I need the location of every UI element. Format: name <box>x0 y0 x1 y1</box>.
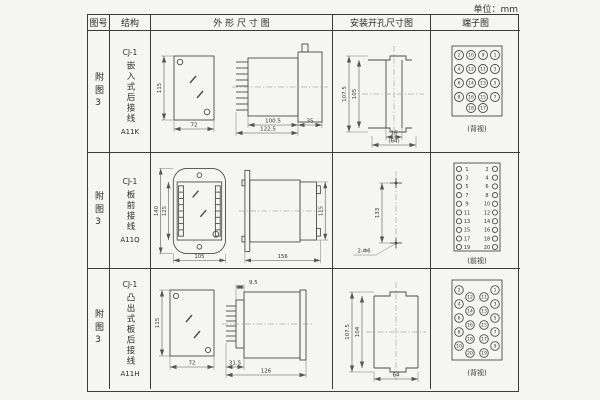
terminal-number: 17 <box>480 105 486 111</box>
fig-cell-row1: 附图3 <box>88 31 110 153</box>
fig-number: 附图3 <box>92 72 105 112</box>
terminal-number: 5 <box>493 316 496 322</box>
terminal-number: 11 <box>463 210 469 216</box>
terminal-number: 20 <box>467 351 473 357</box>
terminal-number: 1 <box>493 52 496 58</box>
outline-cell-row3: 115 72 9.5 31.5 126 <box>151 269 333 389</box>
terminal-cell-row2: 1 2 3 4 5 6 7 8 9 10 11 12 13 14 15 16 1… <box>431 153 520 269</box>
fig-cell-row3: 附图3 <box>88 269 110 389</box>
dim-flange-width: 35 <box>306 118 313 124</box>
mounting-drawing-a11k: 107.5 105 16 (64) <box>334 32 430 152</box>
mounting-drawing-a11q: 133 2-Φ6 <box>334 155 430 267</box>
dim-front-height: 115 <box>155 317 161 328</box>
terminal-number: 6 <box>485 184 488 190</box>
terminal-number: 16 <box>467 323 473 329</box>
terminal-number: 15 <box>481 323 487 329</box>
terminal-cell-row1: 2 10 9 1 4 12 11 3 6 14 13 5 8 16 15 7 1… <box>431 31 520 153</box>
dim-step: 9.5 <box>249 280 258 286</box>
terminal-number: 19 <box>463 244 469 250</box>
dim-front-width: 105 <box>194 253 204 259</box>
terminal-number: 14 <box>483 219 489 225</box>
terminal-number: 18 <box>483 236 489 242</box>
terminal-number: 2 <box>457 52 460 58</box>
dim-span-width: (64) <box>388 138 399 144</box>
terminal-number: 5 <box>493 80 496 86</box>
mounting-cell-row1: 107.5 105 16 (64) <box>333 31 431 153</box>
terminal-number: 8 <box>457 330 460 336</box>
terminal-number: 3 <box>493 66 496 72</box>
dim-hole-distance: 133 <box>375 207 381 218</box>
terminal-number: 3 <box>493 302 496 308</box>
dim-front-height: 115 <box>157 82 163 93</box>
relay-code: CJ-1 <box>123 280 138 289</box>
terminal-number: 5 <box>465 184 468 190</box>
terminal-number: 9 <box>481 52 484 58</box>
terminal-number: 4 <box>457 302 460 308</box>
terminal-number: 16 <box>483 227 489 233</box>
wiring-style: 板前接线 <box>124 190 136 232</box>
terminal-number: 15 <box>463 227 469 233</box>
dim-inner-height: 125 <box>162 205 168 215</box>
terminal-number: 6 <box>457 80 460 86</box>
terminal-cell-row3: 2 12 11 1 4 14 13 3 6 16 15 5 8 18 17 7 … <box>431 269 520 389</box>
terminal-number: 14 <box>467 309 473 315</box>
outline-drawing-a11q: 140 125 105 115 156 <box>152 155 332 267</box>
terminal-number: 9 <box>465 201 468 207</box>
terminal-number: 7 <box>493 330 496 336</box>
outline-cell-row2: 140 125 105 115 156 <box>151 153 333 269</box>
header-terminal: 端子图 <box>431 15 520 31</box>
outline-drawing-a11h: 115 72 9.5 31.5 126 <box>152 270 332 388</box>
terminal-number: 3 <box>465 175 468 181</box>
dim-front-width: 72 <box>188 361 195 367</box>
dim-slot-width: 16 <box>390 130 397 136</box>
terminal-number: 19 <box>481 351 487 357</box>
structure-cell-row3: CJ-1 凸出式板后接线 A11H <box>110 269 151 389</box>
terminal-number: 1 <box>493 288 496 294</box>
outline-drawing-a11k: 115 72 100.5 35 122.5 <box>152 32 332 152</box>
dim-side-height: 115 <box>318 205 324 215</box>
terminal-number: 13 <box>463 219 469 225</box>
dim-pin-length: 31.5 <box>228 361 241 367</box>
wiring-style: 嵌入式后接线 <box>124 61 136 124</box>
dim-total-length: 156 <box>277 253 288 259</box>
outline-cell-row1: 115 72 100.5 35 122.5 <box>151 31 333 153</box>
terminal-number: 1 <box>465 166 468 172</box>
terminal-number: 6 <box>457 316 460 322</box>
mounting-cell-row2: 133 2-Φ6 <box>333 153 431 269</box>
terminal-number: 14 <box>468 80 474 86</box>
terminal-number: 10 <box>456 344 462 350</box>
terminal-number: 18 <box>468 105 474 111</box>
relay-code: CJ-1 <box>123 177 138 186</box>
model-number: A11K <box>121 128 139 136</box>
mounting-cell-row3: 107.5 104 64 <box>333 269 431 389</box>
fig-number: 附图3 <box>92 309 105 349</box>
terminal-number: 7 <box>465 192 468 198</box>
terminal-number: 4 <box>457 66 460 72</box>
hole-spec-label: 2-Φ6 <box>357 248 371 254</box>
terminal-number: 17 <box>481 337 487 343</box>
relay-code: CJ-1 <box>123 48 138 57</box>
model-number: A11Q <box>120 236 139 244</box>
terminal-number: 16 <box>468 94 474 100</box>
model-number: A11H <box>121 370 140 378</box>
dim-total-length: 126 <box>260 369 271 375</box>
wiring-style: 凸出式板后接线 <box>124 293 136 367</box>
terminal-number: 13 <box>481 309 487 315</box>
terminal-number: 13 <box>480 80 486 86</box>
dim-front-width: 72 <box>190 122 197 128</box>
dim-mount-inner-h: 104 <box>355 326 361 337</box>
terminal-number: 8 <box>457 94 460 100</box>
dim-mount-outer-h: 107.5 <box>342 85 348 101</box>
terminal-number: 7 <box>493 94 496 100</box>
terminal-drawing-a11h: 2 12 11 1 4 14 13 3 6 16 15 5 8 18 17 7 … <box>432 270 520 388</box>
header-fig: 图号 <box>88 15 110 31</box>
structure-cell-row1: CJ-1 嵌入式后接线 A11K <box>110 31 151 153</box>
terminal-number: 12 <box>467 295 473 301</box>
terminal-number: 2 <box>485 166 488 172</box>
terminal-number: 8 <box>485 192 488 198</box>
view-label: (背视) <box>467 124 487 133</box>
terminal-number: 2 <box>457 288 460 294</box>
fig-number: 附图3 <box>92 191 105 231</box>
dim-total-length: 122.5 <box>260 126 276 132</box>
terminal-number: 11 <box>481 295 487 301</box>
terminal-number: 15 <box>480 94 486 100</box>
header-structure: 结构 <box>110 15 151 31</box>
mounting-drawing-a11h: 107.5 104 64 <box>334 270 430 388</box>
terminal-number: 10 <box>483 201 489 207</box>
terminal-number: 4 <box>485 175 488 181</box>
dim-mount-outer-h: 107.5 <box>345 324 351 340</box>
terminal-number: 11 <box>480 66 486 72</box>
structure-cell-row2: CJ-1 板前接线 A11Q <box>110 153 151 269</box>
terminal-number: 10 <box>468 52 474 58</box>
dim-body-length: 100.5 <box>265 118 281 124</box>
header-mounting: 安装开孔尺寸图 <box>333 15 431 31</box>
terminal-number: 20 <box>483 244 489 250</box>
terminal-drawing-a11k: 2 10 9 1 4 12 11 3 6 14 13 5 8 16 15 7 1… <box>432 32 520 152</box>
header-outline: 外 形 尺 寸 图 <box>151 15 333 31</box>
terminal-number: 18 <box>467 337 473 343</box>
dimension-table: 图号 结构 外 形 尺 寸 图 安装开孔尺寸图 端子图 附图3 CJ-1 嵌入式… <box>87 14 519 392</box>
view-label: (背视) <box>467 368 487 377</box>
view-label: (前视) <box>467 256 487 265</box>
terminal-number: 17 <box>463 236 469 242</box>
dim-mount-width: 64 <box>392 373 399 379</box>
terminal-drawing-a11q: 1 2 3 4 5 6 7 8 9 10 11 12 13 14 15 16 1… <box>432 155 520 267</box>
terminal-number: 12 <box>468 66 474 72</box>
dim-outer-height: 140 <box>153 205 159 216</box>
terminal-number: 12 <box>483 210 489 216</box>
dim-mount-inner-h: 105 <box>352 88 358 99</box>
fig-cell-row2: 附图3 <box>88 153 110 269</box>
terminal-number: 9 <box>493 344 496 350</box>
